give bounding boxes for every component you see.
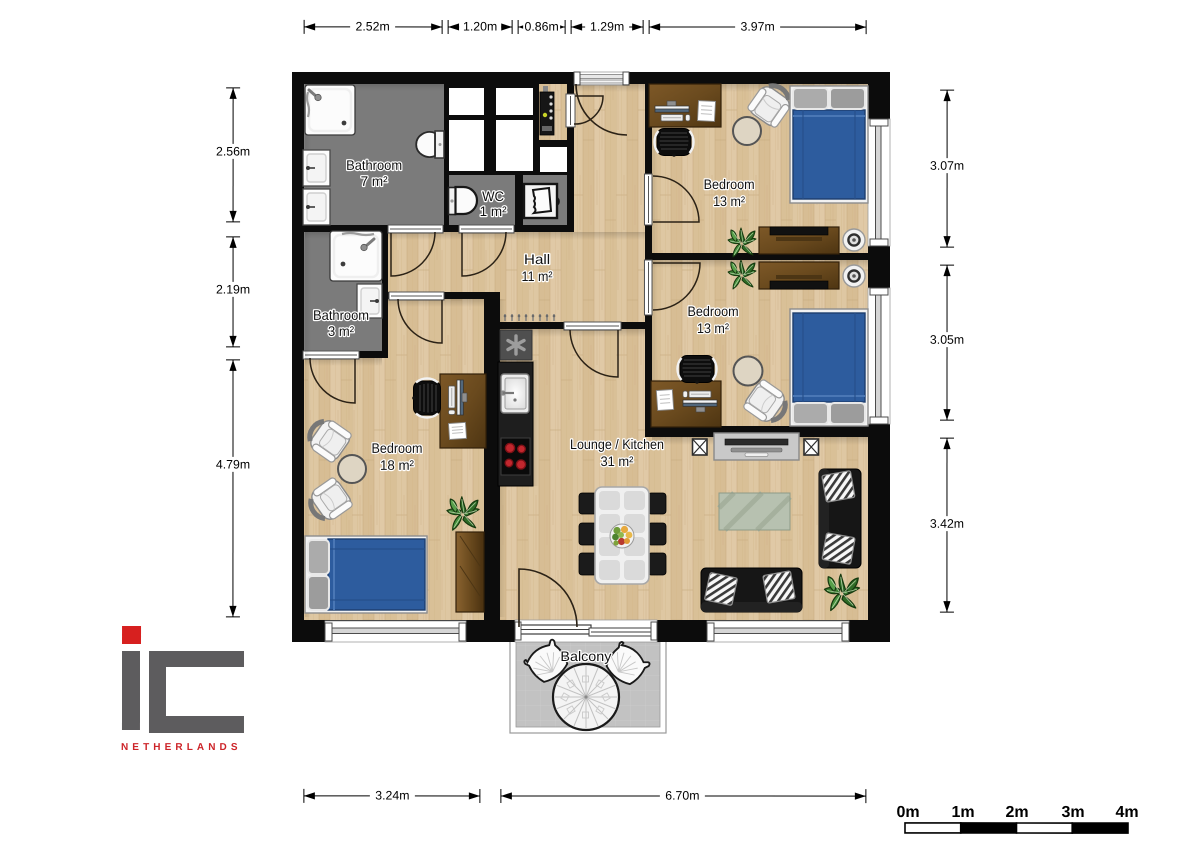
svg-text:4.79m: 4.79m (216, 457, 250, 471)
svg-text:31 m²: 31 m² (600, 454, 633, 469)
svg-text:1.29m: 1.29m (590, 20, 624, 34)
svg-text:3.05m: 3.05m (930, 333, 964, 347)
svg-text:Lounge / Kitchen: Lounge / Kitchen (570, 437, 664, 452)
svg-text:1.20m: 1.20m (463, 20, 497, 34)
svg-text:Bathroom: Bathroom (313, 308, 369, 323)
svg-text:WC: WC (482, 189, 504, 204)
svg-text:7 m²: 7 m² (361, 174, 388, 189)
svg-text:2.56m: 2.56m (216, 144, 250, 158)
svg-text:NETHERLANDS: NETHERLANDS (121, 742, 242, 753)
svg-text:Hall: Hall (524, 252, 550, 267)
svg-text:3m: 3m (1061, 804, 1084, 821)
svg-text:3 m²: 3 m² (328, 324, 354, 339)
svg-text:3.97m: 3.97m (741, 20, 775, 34)
svg-text:2m: 2m (1005, 804, 1028, 821)
svg-text:Bedroom: Bedroom (688, 304, 739, 319)
svg-text:3.07m: 3.07m (930, 159, 964, 173)
svg-text:1 m²: 1 m² (480, 204, 507, 219)
svg-text:Bathroom: Bathroom (346, 158, 402, 173)
svg-text:13 m²: 13 m² (713, 194, 745, 209)
svg-text:3.42m: 3.42m (930, 517, 964, 531)
svg-text:18 m²: 18 m² (380, 458, 414, 473)
svg-text:4m: 4m (1115, 804, 1138, 821)
svg-text:6.70m: 6.70m (665, 789, 699, 803)
svg-text:Bedroom: Bedroom (371, 441, 422, 456)
svg-text:Bedroom: Bedroom (704, 177, 755, 192)
svg-text:Balcony: Balcony (560, 649, 611, 664)
svg-text:2.19m: 2.19m (216, 282, 250, 296)
svg-text:0m: 0m (896, 804, 919, 821)
svg-text:2.52m: 2.52m (356, 20, 390, 34)
svg-text:0.86m: 0.86m (525, 20, 559, 34)
svg-text:11 m²: 11 m² (522, 269, 553, 284)
svg-text:13 m²: 13 m² (697, 321, 729, 336)
svg-text:3.24m: 3.24m (375, 789, 409, 803)
svg-text:1m: 1m (951, 804, 974, 821)
